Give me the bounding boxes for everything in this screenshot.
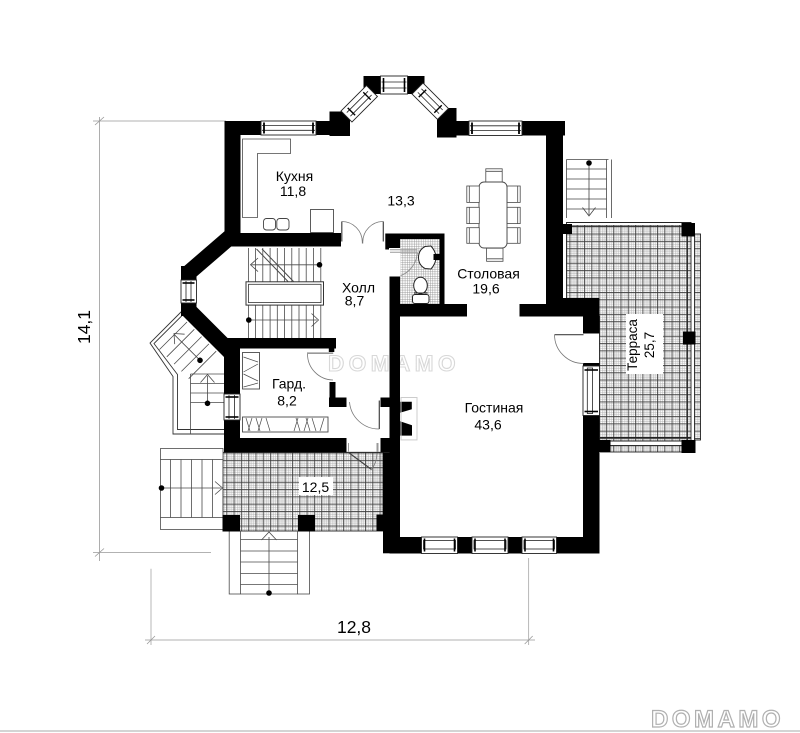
svg-text:19,6: 19,6 xyxy=(472,281,499,297)
svg-text:Гостиная: Гостиная xyxy=(465,400,524,416)
svg-text:12,5: 12,5 xyxy=(302,479,329,495)
svg-text:43,6: 43,6 xyxy=(474,417,501,433)
svg-text:8,2: 8,2 xyxy=(277,393,297,409)
svg-text:Терраса: Терраса xyxy=(625,319,640,371)
svg-text:Кухня: Кухня xyxy=(276,168,313,184)
svg-text:13,3: 13,3 xyxy=(387,193,414,209)
svg-text:DOMAMO: DOMAMO xyxy=(651,706,784,733)
svg-text:Гард.: Гард. xyxy=(272,376,306,392)
svg-text:25,7: 25,7 xyxy=(642,332,657,358)
svg-text:8,7: 8,7 xyxy=(345,293,365,309)
svg-text:Столовая: Столовая xyxy=(457,266,520,282)
svg-text:14,1: 14,1 xyxy=(74,310,94,344)
svg-text:11,8: 11,8 xyxy=(280,183,306,199)
svg-text:12,8: 12,8 xyxy=(337,617,371,637)
